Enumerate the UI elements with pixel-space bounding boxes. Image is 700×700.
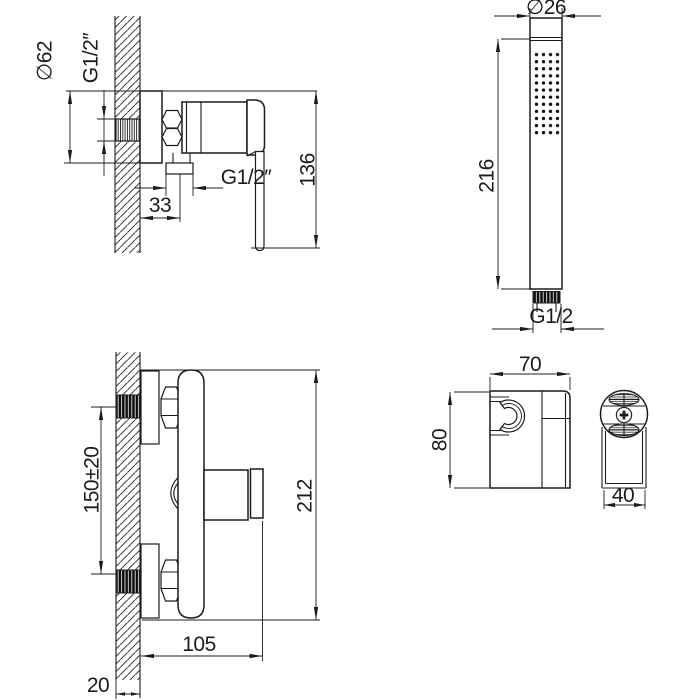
dim-shower-thread: G1/2: [492, 304, 604, 333]
label-flange-diameter: ∅62: [34, 41, 57, 81]
mixer-body-front: [178, 370, 204, 618]
label-front-height: 212: [294, 479, 317, 513]
dim-shower-diameter: ∅26: [494, 0, 601, 19]
label-inlet-spacing: 150±20: [81, 447, 104, 514]
knob-grip-bottom: [609, 424, 639, 436]
label-wall-thickness: 20: [87, 674, 109, 697]
union-nut: [162, 111, 182, 146]
lower-inlet-thread: [117, 570, 141, 593]
bracket-side-view: 40: [601, 391, 648, 510]
hose-thread: [533, 292, 560, 304]
label-front-width: 105: [182, 633, 216, 656]
label-shower-thread: G1/2: [529, 305, 573, 328]
knob-screw: [616, 407, 631, 422]
label-bracket-width: 70: [519, 353, 541, 376]
outlet-cap: [251, 469, 264, 518]
bracket-front-view: 70 80: [429, 353, 571, 488]
technical-drawing-sheet: ∅62 G1/2″ 136 33 G1/2″: [0, 0, 700, 700]
wall-thread-pipe: [116, 119, 140, 141]
bottom-outlet: [166, 153, 193, 174]
label-shower-length: 216: [476, 159, 499, 193]
dim-bracket-height: 80: [429, 392, 490, 488]
upper-eccentric: [141, 371, 159, 444]
label-outlet-offset: 33: [149, 194, 171, 217]
mixer-side-view: ∅62 G1/2″ 136 33 G1/2″: [34, 16, 321, 253]
spray-nozzles: [533, 51, 561, 136]
outlet-housing: [204, 470, 248, 520]
dim-flange-diameter: ∅62: [34, 41, 73, 163]
label-bracket-depth: 40: [612, 484, 634, 507]
mixer-front-view: 150±20 212 105 20: [81, 352, 321, 699]
drawing-canvas: ∅62 G1/2″ 136 33 G1/2″: [0, 0, 700, 700]
dim-bracket-width: 70: [490, 353, 570, 390]
label-wall-thread: G1/2″: [80, 32, 103, 84]
lever-front-profile: [171, 478, 178, 510]
dim-inlet-spacing: 150±20: [81, 407, 118, 574]
upper-inlet-thread: [117, 395, 141, 418]
label-shower-diameter: ∅26: [526, 0, 566, 19]
wall-flange: [140, 91, 162, 163]
dim-wall-thread: G1/2″: [80, 32, 117, 176]
dim-outlet-thread: G1/2″: [134, 166, 272, 196]
lower-eccentric: [141, 544, 159, 618]
hand-shower-view: ∅26 216 G1/2: [476, 0, 605, 333]
knob-grip-top: [609, 394, 639, 406]
valve-cap: [247, 100, 265, 155]
dim-shower-length: 216: [476, 39, 531, 289]
label-bracket-height: 80: [429, 429, 452, 451]
label-side-height: 136: [297, 153, 320, 187]
dim-outlet-offset: 33: [140, 174, 180, 222]
label-outlet-thread: G1/2″: [221, 166, 273, 189]
valve-body: [182, 102, 247, 153]
